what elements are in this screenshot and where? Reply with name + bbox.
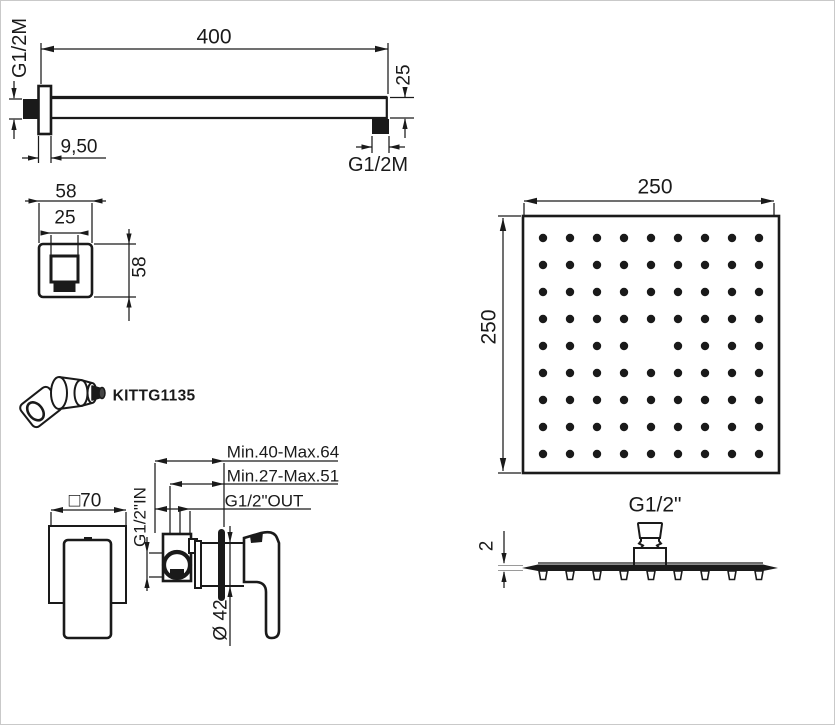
- nozzle-dot: [593, 288, 601, 296]
- mixer-plate-size-label: □70: [69, 492, 102, 511]
- nozzle-dot: [755, 396, 763, 404]
- nozzle-dot: [674, 396, 682, 404]
- arm-end-thread-connector: [372, 119, 389, 134]
- side-nozzle: [539, 571, 547, 580]
- nozzle-dot: [728, 342, 736, 350]
- flange-height-label: 58: [131, 256, 150, 277]
- nozzle-dot: [674, 450, 682, 458]
- nozzle-dot: [620, 315, 628, 323]
- nozzle-dot: [755, 315, 763, 323]
- nozzle-dot: [755, 423, 763, 431]
- dim-arm-height: [390, 87, 414, 138]
- dim-head-height: [498, 216, 521, 473]
- dim-arm-end-thread: [356, 136, 405, 153]
- nozzle-dot: [701, 288, 709, 296]
- nozzle-dot: [674, 369, 682, 377]
- nozzle-dot: [728, 369, 736, 377]
- arm-wall-flange: [39, 86, 52, 134]
- nozzle-dot: [701, 423, 709, 431]
- nozzle-dot: [647, 450, 655, 458]
- head-height-label: 250: [479, 309, 500, 344]
- nozzle-dot: [674, 234, 682, 242]
- nozzle-dot: [755, 261, 763, 269]
- nozzle-dot: [755, 450, 763, 458]
- nozzle-dot: [674, 288, 682, 296]
- side-nozzle: [620, 571, 628, 580]
- head-width-label: 250: [637, 177, 672, 198]
- nozzle-dot: [620, 288, 628, 296]
- mixer-front-handle: [64, 540, 111, 638]
- nozzle-dot: [566, 369, 574, 377]
- nozzle-dot: [566, 342, 574, 350]
- arm-flange-depth-label: 9,50: [61, 138, 98, 157]
- dim-arm-wall-thread: [9, 81, 22, 139]
- nozzle-dot: [647, 423, 655, 431]
- flange-inner-width-label: 25: [54, 209, 75, 228]
- nozzle-dot: [701, 396, 709, 404]
- arm-end-thread-label: G1/2M: [348, 155, 408, 175]
- mixer-depth-total-label: Min.40-Max.64: [227, 444, 339, 461]
- nozzle-dot: [566, 450, 574, 458]
- side-nozzle: [728, 571, 736, 580]
- nozzle-dot: [566, 288, 574, 296]
- nozzle-dot: [539, 288, 547, 296]
- side-nozzle: [701, 571, 709, 580]
- head-thread-label: G1/2": [629, 495, 682, 516]
- mixer-side-handle: [244, 532, 279, 638]
- mixer-depth-rough-label: Min.27-Max.51: [227, 468, 339, 485]
- nozzle-dot: [620, 261, 628, 269]
- dim-head-thickness: [498, 531, 523, 588]
- arm-body: [49, 97, 387, 120]
- nozzle-dot: [566, 396, 574, 404]
- nozzle-dot: [566, 315, 574, 323]
- nozzle-dot: [620, 369, 628, 377]
- nozzle-dot: [674, 423, 682, 431]
- nozzle-dot: [701, 369, 709, 377]
- nozzle-dot: [539, 396, 547, 404]
- nozzle-dot: [755, 234, 763, 242]
- nozzle-dot: [539, 315, 547, 323]
- side-nozzle: [593, 571, 601, 580]
- arm-height-label: 25: [395, 64, 414, 85]
- nozzle-dot: [566, 261, 574, 269]
- head-thread-connector: [634, 523, 666, 566]
- shower-head-face-view: [461, 171, 835, 486]
- nozzle-dot: [593, 423, 601, 431]
- kit-cartridge-icon: [17, 363, 113, 435]
- nozzle-dot: [728, 396, 736, 404]
- nozzle-dot: [755, 288, 763, 296]
- arm-wall-thread-label: G1/2M: [10, 18, 30, 78]
- flange-plate: [39, 244, 92, 297]
- mixer-trim-disc: [218, 529, 225, 601]
- nozzle-dot: [620, 234, 628, 242]
- mixer-front-handle-notch: [84, 537, 92, 541]
- mixer-trim-diameter-label: Ø 42: [212, 599, 231, 640]
- nozzle-dot: [701, 342, 709, 350]
- side-nozzle: [755, 571, 763, 580]
- nozzle-dot: [539, 261, 547, 269]
- nozzle-dot: [701, 450, 709, 458]
- mixer-front-view: [49, 507, 126, 638]
- mixer-inlet-label: G1/2"IN: [132, 487, 149, 547]
- nozzle-dot: [647, 396, 655, 404]
- shower-head-face-linework: [461, 171, 835, 486]
- nozzle-dot: [647, 315, 655, 323]
- nozzle-dot: [701, 234, 709, 242]
- nozzle-dot: [593, 369, 601, 377]
- nozzle-dot: [539, 369, 547, 377]
- nozzle-dot: [728, 450, 736, 458]
- side-nozzle: [647, 571, 655, 580]
- nozzle-dot: [701, 315, 709, 323]
- nozzle-dot: [728, 288, 736, 296]
- nozzle-dot: [674, 315, 682, 323]
- nozzle-dot: [728, 261, 736, 269]
- nozzle-dot: [701, 261, 709, 269]
- nozzle-dot: [593, 450, 601, 458]
- head-thickness-label: 2: [478, 541, 497, 552]
- nozzle-dot: [539, 423, 547, 431]
- nozzle-dot: [647, 234, 655, 242]
- nozzle-dot: [593, 342, 601, 350]
- kit-cartridge-icon-art: [17, 363, 113, 435]
- nozzle-dot: [728, 315, 736, 323]
- nozzle-dot: [755, 369, 763, 377]
- nozzle-dot: [539, 342, 547, 350]
- nozzle-dot: [728, 234, 736, 242]
- nozzle-dot: [728, 423, 736, 431]
- kit-code-label: KITTG1135: [113, 388, 196, 404]
- side-nozzle: [674, 571, 682, 580]
- side-nozzle-row: [539, 571, 763, 580]
- nozzle-dot: [674, 342, 682, 350]
- nozzle-dot: [620, 423, 628, 431]
- nozzle-dot: [620, 396, 628, 404]
- side-nozzle: [566, 571, 574, 580]
- nozzle-dot: [674, 261, 682, 269]
- technical-drawing-canvas: 400 G1/2M 25 9,50 G1/2M 58 25 58 KITTG11…: [0, 0, 835, 725]
- mixer-outlet-label: G1/2"OUT: [225, 493, 304, 510]
- nozzle-dot: [593, 234, 601, 242]
- perforation-grid: [539, 234, 763, 458]
- nozzle-dot: [647, 288, 655, 296]
- mixer-backplate: [195, 541, 201, 588]
- arm-length-label: 400: [196, 27, 231, 48]
- shower-head-plate: [523, 216, 779, 473]
- nozzle-dot: [593, 315, 601, 323]
- nozzle-dot: [566, 423, 574, 431]
- nozzle-dot: [647, 369, 655, 377]
- dim-head-width: [524, 198, 774, 215]
- nozzle-dot: [620, 342, 628, 350]
- arm-wall-thread-connector: [23, 99, 38, 119]
- nozzle-dot: [593, 261, 601, 269]
- nozzle-dot: [539, 234, 547, 242]
- nozzle-dot: [566, 234, 574, 242]
- nozzle-dot: [755, 342, 763, 350]
- nozzle-dot: [539, 450, 547, 458]
- nozzle-dot: [593, 396, 601, 404]
- flange-width-label: 58: [55, 183, 76, 202]
- nozzle-dot: [620, 450, 628, 458]
- nozzle-dot: [647, 261, 655, 269]
- mixer-inlet-slot: [170, 569, 184, 577]
- dim-arm-length: [41, 43, 388, 94]
